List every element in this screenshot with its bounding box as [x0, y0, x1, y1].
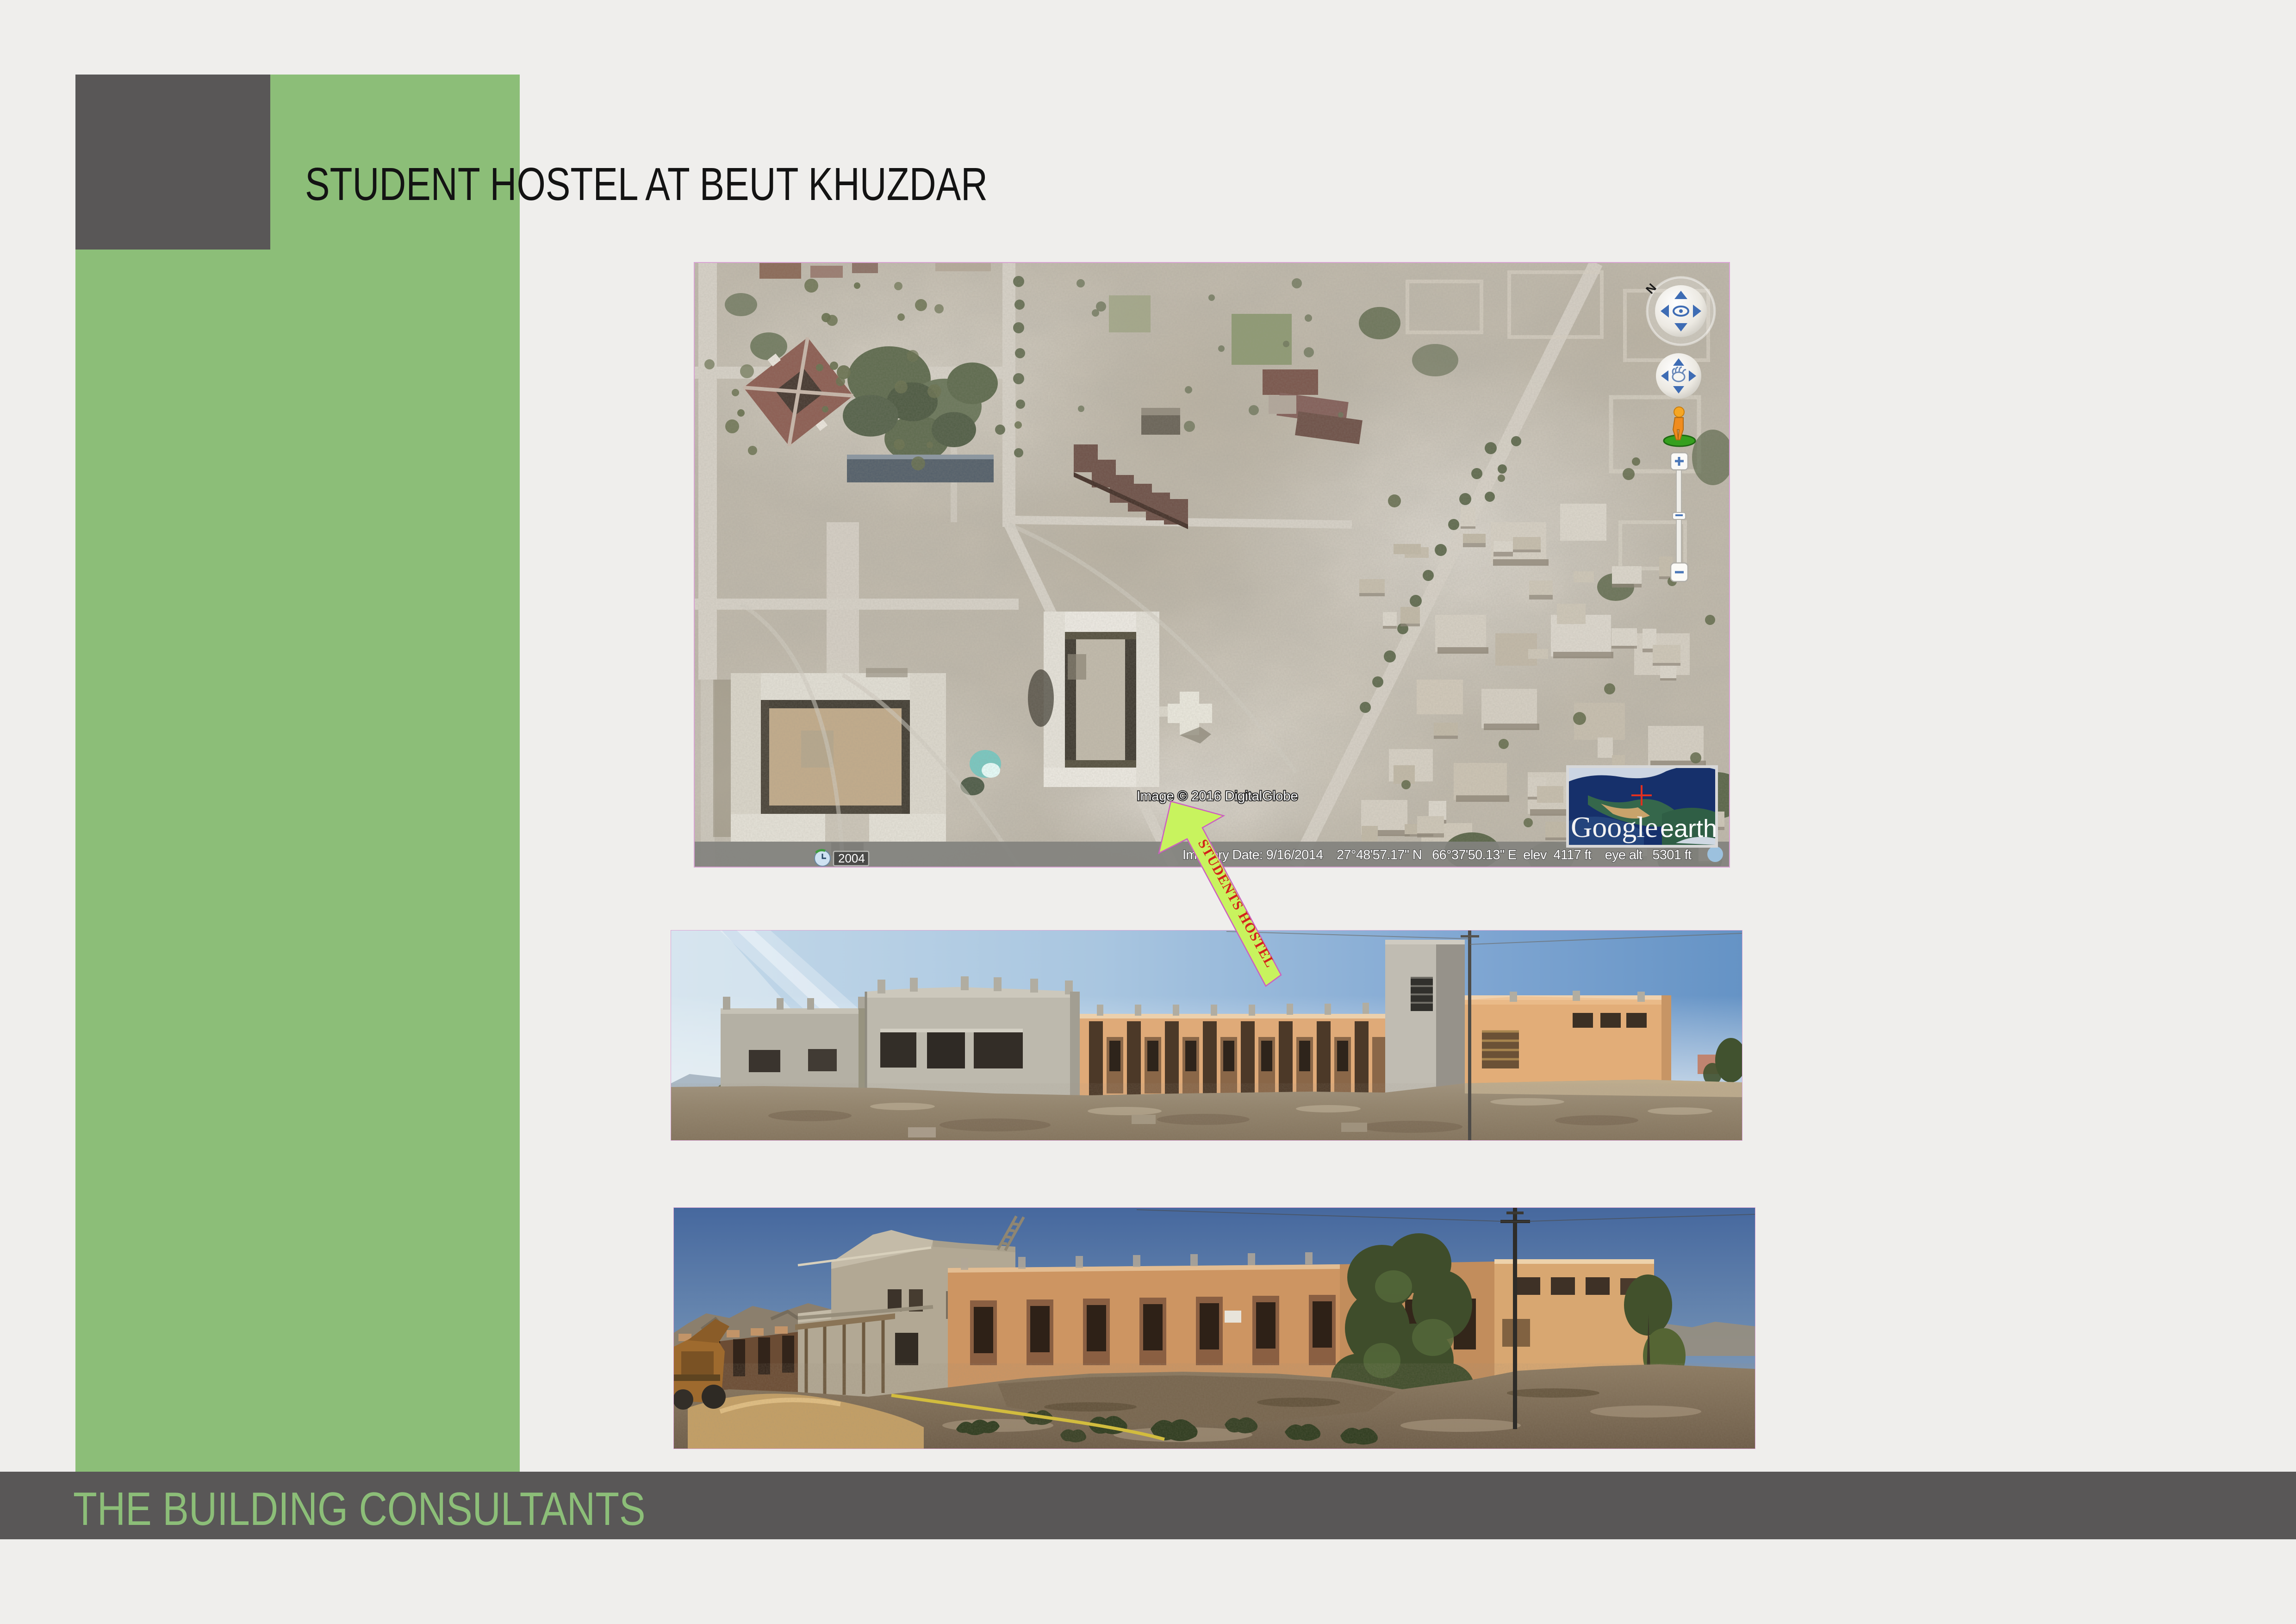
svg-text:2004: 2004 — [838, 851, 865, 865]
svg-text:STUDENTS HOSTEL: STUDENTS HOSTEL — [1195, 837, 1278, 970]
svg-text:earth: earth — [1660, 815, 1717, 843]
svg-text:Google: Google — [1571, 811, 1658, 843]
